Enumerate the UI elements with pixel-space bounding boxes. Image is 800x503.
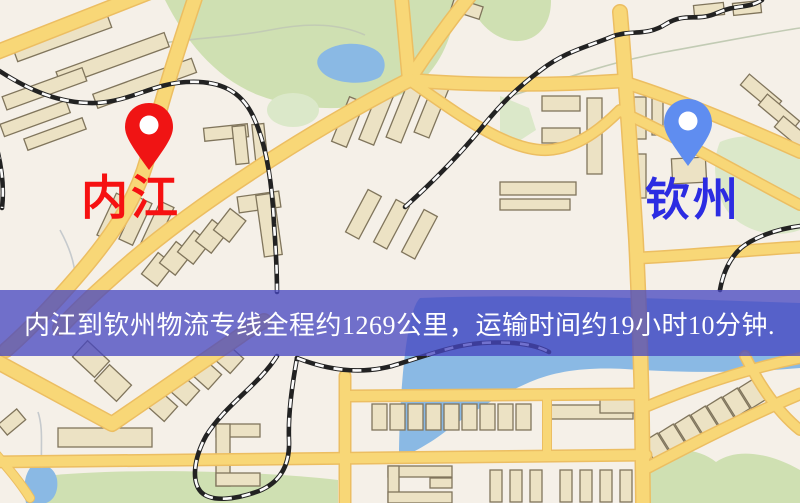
origin-label: 内江 [66, 176, 196, 223]
route-banner: 内江到钦州物流专线全程约1269公里，运输时间约19小时10分钟. [0, 290, 800, 356]
map-background [0, 0, 800, 503]
origin-pin-icon [123, 102, 175, 172]
destination-label: 钦州 [626, 178, 760, 223]
destination-pin-icon [662, 98, 714, 168]
map-canvas: 内江 钦州 内江到钦州物流专线全程约1269公里，运输时间约19小时10分钟. [0, 0, 800, 503]
route-banner-text: 内江到钦州物流专线全程约1269公里，运输时间约19小时10分钟. [0, 305, 775, 342]
